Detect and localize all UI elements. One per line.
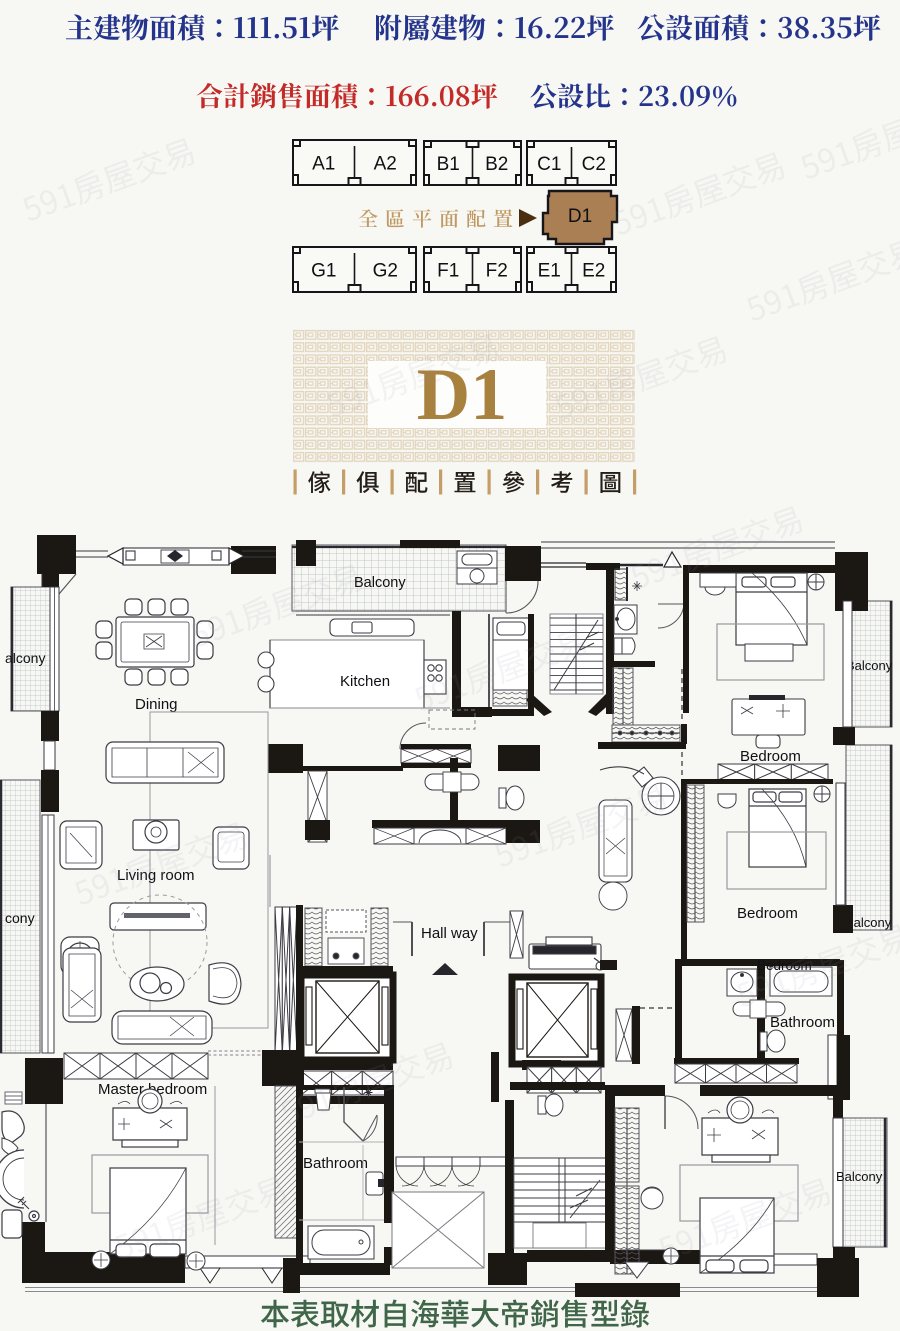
svg-text:C2: C2 <box>582 154 606 175</box>
svg-text:Bathroom: Bathroom <box>303 1155 368 1172</box>
svg-text:Kitchen: Kitchen <box>340 673 390 690</box>
svg-text:alcony: alcony <box>5 650 45 666</box>
svg-text:G2: G2 <box>373 261 398 282</box>
svg-text:E2: E2 <box>582 261 605 282</box>
svg-text:Bathroom: Bathroom <box>770 1014 835 1031</box>
svg-text:cony: cony <box>5 910 35 926</box>
svg-text:F2: F2 <box>486 261 508 282</box>
svg-text:Hall way: Hall way <box>421 925 478 942</box>
svg-text:Bedroom: Bedroom <box>737 905 798 922</box>
svg-text:C1: C1 <box>537 154 561 175</box>
svg-text:Bedroom: Bedroom <box>740 748 801 765</box>
svg-text:B1: B1 <box>437 154 460 175</box>
svg-text:Dining: Dining <box>135 696 178 713</box>
svg-text:F1: F1 <box>437 261 459 282</box>
svg-text:B2: B2 <box>485 154 508 175</box>
svg-text:A2: A2 <box>374 154 397 175</box>
svg-text:Balcony: Balcony <box>846 658 893 673</box>
svg-text:A1: A1 <box>312 154 335 175</box>
svg-text:E1: E1 <box>538 261 561 282</box>
svg-text:G1: G1 <box>311 261 336 282</box>
svg-text:D1: D1 <box>568 206 592 227</box>
svg-text:Balcony: Balcony <box>836 1169 883 1184</box>
